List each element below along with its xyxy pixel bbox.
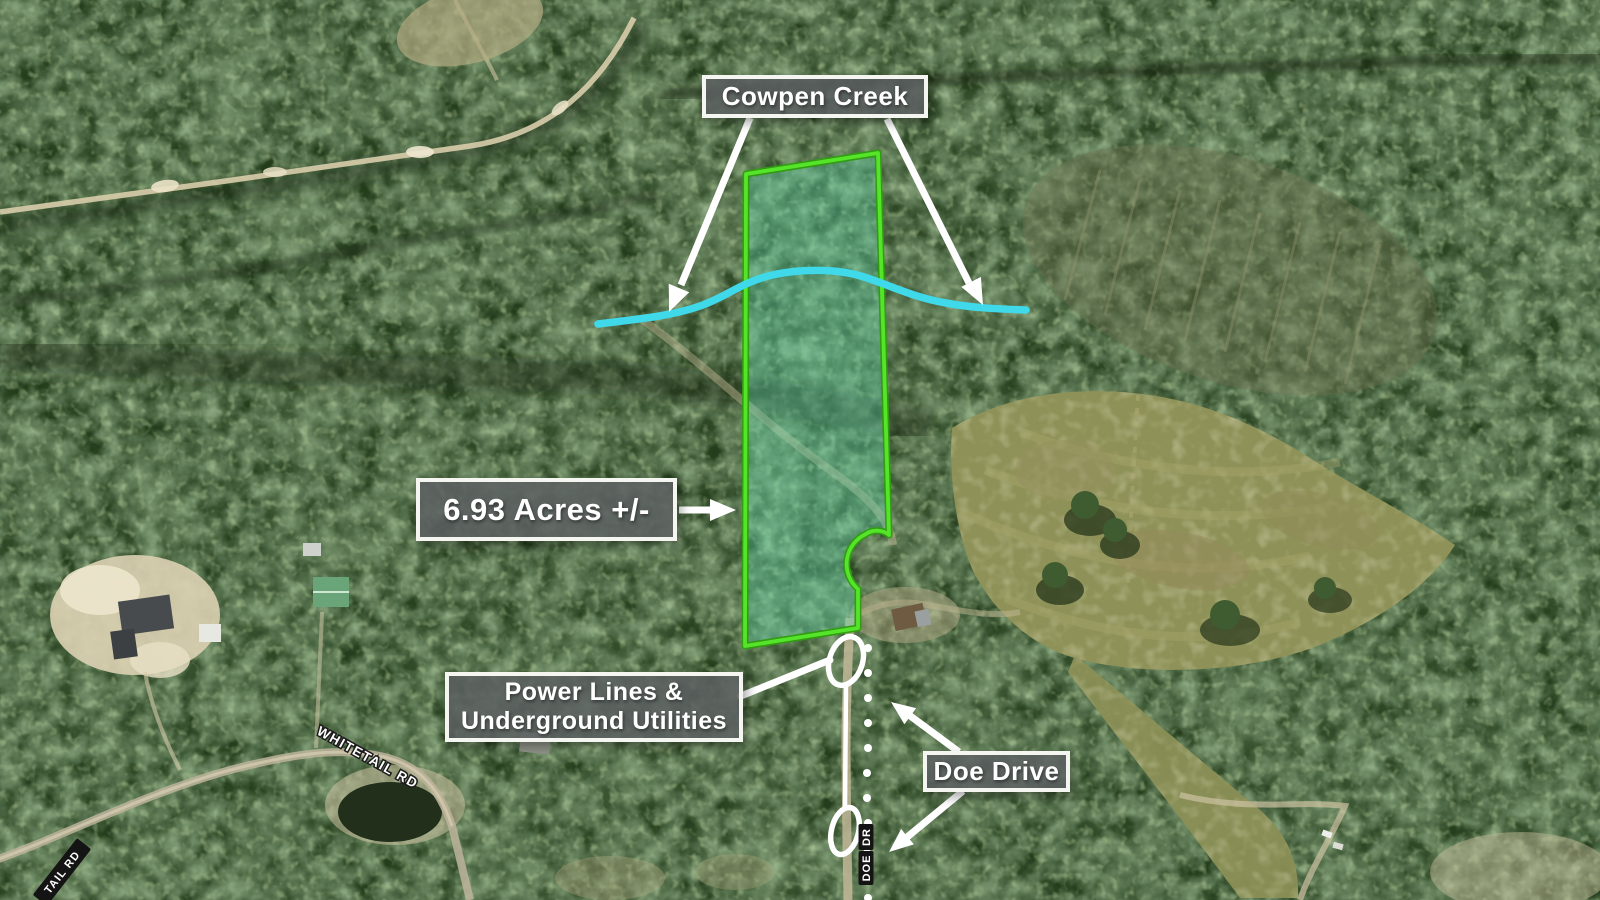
utilities-label-line1: Power Lines &: [505, 678, 684, 707]
utility-pole-line: [845, 686, 846, 807]
road-label-doe-dr: DR DOE: [859, 824, 874, 885]
doe-drive-label-text: Doe Drive: [934, 757, 1060, 787]
acreage-label: 6.93 Acres +/-: [416, 478, 677, 541]
house-dark-roof: [118, 595, 174, 636]
doe-dr-chip-text: DR: [861, 828, 873, 846]
utilities-label: Power Lines & Underground Utilities: [445, 672, 743, 742]
small-shed: [303, 543, 321, 556]
aerial-map-canvas: WHITETAIL RD TAIL RD DR DOE: [0, 0, 1600, 900]
creek-label: Cowpen Creek: [702, 75, 928, 118]
doe-drive-label: Doe Drive: [923, 751, 1070, 792]
white-shed: [199, 624, 221, 642]
utilities-label-line2: Underground Utilities: [461, 707, 727, 736]
doe-chip-text: DOE: [861, 855, 873, 882]
creek-label-text: Cowpen Creek: [722, 82, 909, 112]
acreage-label-text: 6.93 Acres +/-: [443, 492, 650, 528]
aerial-property-map: WHITETAIL RD TAIL RD DR DOE Cowpen Creek…: [0, 0, 1600, 900]
house-outbuilding: [110, 628, 138, 659]
